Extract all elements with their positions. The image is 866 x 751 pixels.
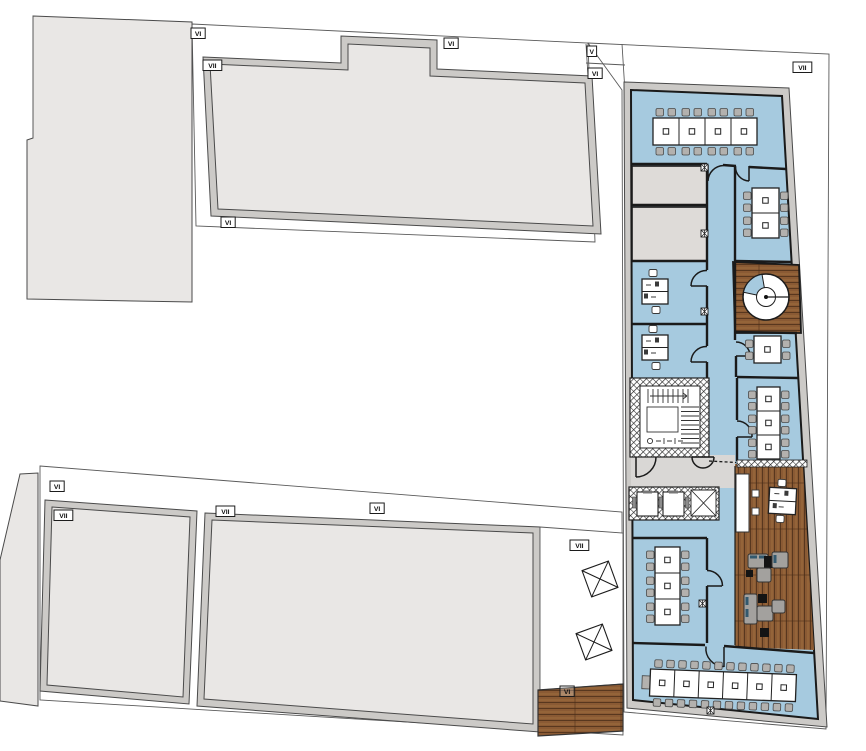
chair-icon bbox=[781, 192, 789, 200]
chair-icon bbox=[746, 109, 754, 117]
chair-icon bbox=[787, 665, 795, 673]
chair-icon bbox=[647, 615, 655, 623]
chair-icon bbox=[682, 603, 690, 611]
section-label: VII bbox=[570, 540, 589, 551]
counter bbox=[736, 474, 749, 532]
section-label: VII bbox=[203, 60, 222, 71]
chair-icon bbox=[647, 577, 655, 585]
armchair bbox=[757, 606, 773, 621]
chair-icon bbox=[682, 589, 690, 597]
chair-icon bbox=[682, 109, 690, 117]
section-label: V bbox=[587, 46, 597, 57]
chair-icon bbox=[744, 204, 752, 212]
chair-icon bbox=[649, 326, 657, 333]
chair-icon bbox=[703, 662, 711, 670]
chair-icon bbox=[749, 702, 757, 710]
chair-icon bbox=[782, 427, 790, 435]
building-top-left bbox=[27, 16, 192, 302]
chair-icon bbox=[746, 148, 754, 156]
chair-icon bbox=[682, 551, 690, 559]
chair-icon bbox=[761, 703, 769, 711]
chair-icon bbox=[749, 439, 757, 447]
stair-landing bbox=[631, 455, 735, 488]
chair-icon bbox=[720, 148, 728, 156]
chair-icon bbox=[775, 664, 783, 672]
section-label: VI bbox=[50, 481, 64, 492]
chair-icon bbox=[682, 615, 690, 623]
side-table bbox=[746, 570, 753, 577]
chair-icon bbox=[668, 109, 676, 117]
section-label: VI bbox=[444, 38, 458, 49]
chair-icon bbox=[715, 662, 723, 670]
svg-text:VII: VII bbox=[208, 63, 216, 70]
svg-text:VI: VI bbox=[564, 689, 571, 696]
chair-icon bbox=[647, 563, 655, 571]
storage-room-1 bbox=[632, 166, 707, 205]
skylight-area bbox=[540, 527, 623, 690]
chair-icon bbox=[749, 403, 757, 411]
chair-icon bbox=[656, 148, 664, 156]
chair-icon bbox=[783, 340, 791, 348]
svg-text:VI: VI bbox=[592, 71, 599, 78]
svg-text:VII: VII bbox=[59, 513, 67, 520]
chair-icon bbox=[677, 700, 685, 708]
chair-icon bbox=[667, 660, 675, 668]
svg-text:VII: VII bbox=[575, 543, 583, 550]
chair-icon bbox=[694, 109, 702, 117]
chair-icon bbox=[655, 660, 663, 668]
wall-vent-icon bbox=[701, 308, 708, 315]
chair-icon bbox=[708, 148, 716, 156]
chair-icon bbox=[665, 699, 673, 707]
chair-icon bbox=[668, 148, 676, 156]
svg-text:VI: VI bbox=[374, 506, 381, 513]
storage-room-2 bbox=[632, 207, 707, 261]
svg-text:VI: VI bbox=[54, 484, 61, 491]
chair-icon bbox=[708, 109, 716, 117]
section-label: VI bbox=[191, 28, 205, 39]
chair-icon bbox=[652, 307, 660, 314]
chair-icon bbox=[682, 148, 690, 156]
chair-icon bbox=[653, 699, 661, 707]
section-label: VI bbox=[588, 68, 602, 79]
wall-vent-icon bbox=[701, 164, 708, 171]
section-label: VI bbox=[560, 686, 574, 697]
section-label: VII bbox=[216, 506, 235, 517]
section-label: VI bbox=[370, 503, 384, 514]
chair-icon bbox=[656, 109, 664, 117]
chair-icon bbox=[689, 700, 697, 708]
monitor-icon bbox=[655, 282, 659, 287]
wall-vent-icon bbox=[707, 707, 714, 714]
monitor-icon bbox=[773, 503, 777, 508]
chair-icon bbox=[744, 217, 752, 225]
chair-icon bbox=[734, 148, 742, 156]
svg-text:VI: VI bbox=[225, 220, 232, 227]
monitor-icon bbox=[644, 350, 648, 355]
section-label: VI bbox=[221, 217, 235, 228]
chair-icon bbox=[776, 515, 784, 522]
chair-icon bbox=[647, 603, 655, 611]
chair-icon bbox=[746, 340, 754, 348]
stool-icon bbox=[752, 490, 759, 497]
chair-icon bbox=[679, 661, 687, 669]
chair-icon bbox=[647, 589, 655, 597]
section-label: VII bbox=[793, 62, 812, 73]
chair-icon bbox=[739, 663, 747, 671]
chair-icon bbox=[781, 204, 789, 212]
chair-icon bbox=[749, 391, 757, 399]
chair-icon bbox=[727, 662, 735, 670]
chair-icon bbox=[773, 703, 781, 711]
stairwell bbox=[630, 378, 709, 457]
chair-icon bbox=[749, 451, 757, 459]
floor-plan-drawing: VIVIIVIVVIVIIVIVIVIIVIIVIVIIVI bbox=[0, 0, 866, 751]
chair-icon bbox=[783, 352, 791, 360]
armchair bbox=[757, 568, 771, 582]
hatched-wall-band bbox=[737, 460, 807, 467]
chair-icon bbox=[720, 109, 728, 117]
svg-text:VII: VII bbox=[798, 65, 806, 72]
chair-icon bbox=[744, 192, 752, 200]
wall-vent-icon bbox=[701, 230, 708, 237]
elevator-car-2 bbox=[663, 492, 684, 516]
chair-icon bbox=[782, 403, 790, 411]
chair-icon bbox=[694, 148, 702, 156]
coffee-table bbox=[758, 594, 767, 603]
monitor-icon bbox=[655, 338, 659, 343]
svg-text:V: V bbox=[590, 49, 595, 56]
chair-icon bbox=[751, 663, 759, 671]
svg-text:VII: VII bbox=[221, 509, 229, 516]
roof-terrace bbox=[538, 684, 623, 736]
elevator-core bbox=[629, 487, 719, 520]
building-left-sliver bbox=[0, 473, 38, 706]
chair-icon bbox=[691, 661, 699, 669]
chair-icon bbox=[781, 217, 789, 225]
wall-vent-icon bbox=[699, 600, 706, 607]
elevator-car-1 bbox=[637, 492, 658, 516]
chair-icon bbox=[778, 479, 786, 486]
building-vii-bottom-middle bbox=[204, 520, 533, 724]
svg-text:VI: VI bbox=[195, 31, 202, 38]
chair-icon bbox=[652, 363, 660, 370]
chair-icon bbox=[781, 229, 789, 237]
side-table bbox=[760, 628, 769, 637]
chair-icon bbox=[782, 439, 790, 447]
section-label: VII bbox=[54, 510, 73, 521]
chair-icon bbox=[682, 577, 690, 585]
chair-icon bbox=[682, 563, 690, 571]
chair-icon bbox=[749, 415, 757, 423]
chair-icon bbox=[649, 270, 657, 277]
chair-icon bbox=[647, 551, 655, 559]
chair-icon bbox=[746, 352, 754, 360]
armchair bbox=[772, 600, 785, 613]
table-end-unit bbox=[642, 676, 650, 689]
monitor-icon bbox=[644, 294, 648, 299]
chair-icon bbox=[785, 704, 793, 712]
stool-icon bbox=[752, 508, 759, 515]
chair-icon bbox=[725, 701, 733, 709]
chair-icon bbox=[749, 427, 757, 435]
svg-text:VI: VI bbox=[448, 41, 455, 48]
spiral-staircase bbox=[743, 274, 789, 320]
monitor-icon bbox=[784, 491, 788, 496]
chair-icon bbox=[744, 229, 752, 237]
chair-icon bbox=[782, 415, 790, 423]
building-vii-bottom-left bbox=[47, 507, 190, 697]
floor-plan-canvas: VIVIIVIVVIVIIVIVIVIIVIIVIVIIVI bbox=[0, 0, 866, 751]
chair-icon bbox=[737, 702, 745, 710]
chair-icon bbox=[734, 109, 742, 117]
chair-icon bbox=[782, 391, 790, 399]
chair-icon bbox=[782, 451, 790, 459]
chair-icon bbox=[763, 664, 771, 672]
